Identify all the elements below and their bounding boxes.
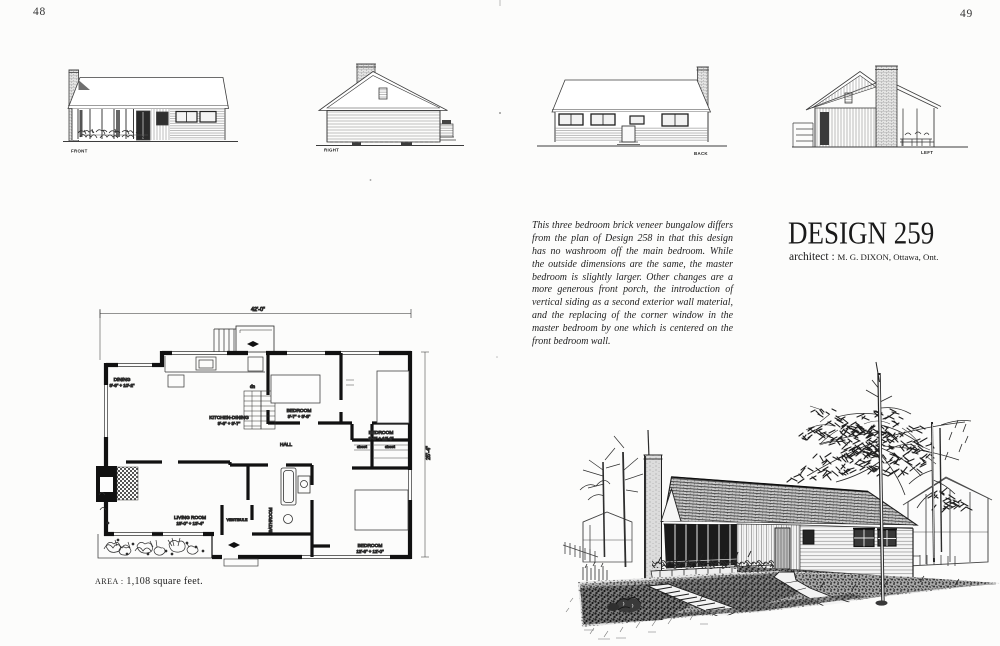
- svg-text:12'-6" + 12'-0": 12'-6" + 12'-0": [356, 549, 384, 554]
- svg-text:dn: dn: [250, 384, 256, 389]
- svg-text:LEFT: LEFT: [921, 150, 933, 155]
- svg-text:18'-0" + 13'-4": 18'-0" + 13'-4": [176, 521, 204, 526]
- svg-text:9'-7" + 8'-8": 9'-7" + 8'-8": [288, 414, 311, 419]
- svg-text:9'-6" + 9'-7": 9'-6" + 9'-7": [218, 421, 241, 426]
- svg-text:HALL: HALL: [280, 442, 292, 448]
- svg-text:VESTIBULE: VESTIBULE: [227, 518, 248, 522]
- svg-text:closet: closet: [357, 445, 368, 449]
- svg-text:BACK: BACK: [694, 151, 708, 156]
- svg-text:42'-0": 42'-0": [251, 307, 265, 313]
- svg-text:BATHROOM: BATHROOM: [268, 507, 273, 532]
- svg-text:closet: closet: [385, 445, 396, 449]
- svg-text:FRONT: FRONT: [71, 149, 88, 154]
- svg-text:RIGHT: RIGHT: [324, 148, 339, 153]
- svg-text:25'-4": 25'-4": [426, 446, 432, 460]
- svg-text:8'-8" + 12'-0": 8'-8" + 12'-0": [369, 436, 394, 441]
- svg-text:8'-6" + 10'-2": 8'-6" + 10'-2": [110, 383, 135, 388]
